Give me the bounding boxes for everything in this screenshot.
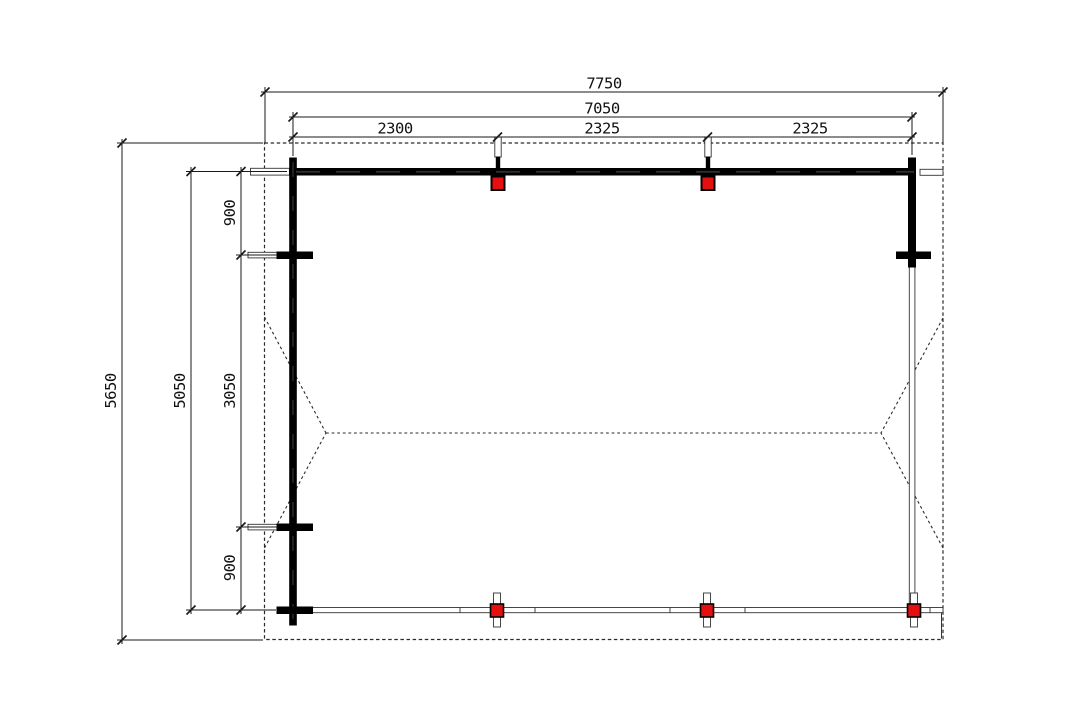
dim-label-inner-width: 7050: [584, 100, 619, 118]
log-end-top-right: [920, 169, 943, 175]
dim-label-overall-width: 7750: [586, 75, 621, 93]
dim-label-overall-depth: 5650: [102, 373, 120, 408]
post-anchor-outline: [495, 137, 501, 157]
dim-label-inner-depth: 5050: [171, 373, 189, 408]
dimension-labels-top: 7750 7050 2300 2325 2325: [377, 75, 827, 138]
carport-floor-plan-drawing: 7750 7050 2300 2325 2325 5650: [0, 0, 1080, 726]
open-walls: [297, 264, 944, 639]
cross-joint-bottom-left: [277, 607, 314, 615]
dimension-labels-left: 5650 5050 900 3050 900: [102, 200, 239, 582]
dim-label-depth-seg-3: 900: [221, 555, 239, 582]
dim-label-bay-3: 2325: [792, 120, 827, 138]
post-marker-bottom-3: [908, 604, 921, 617]
right-wall-beam: [909, 264, 915, 613]
floor-plan-page: 7750 7050 2300 2325 2325 5650: [0, 0, 1080, 726]
post-anchor-outline: [705, 137, 711, 157]
dim-label-depth-seg-1: 900: [221, 200, 239, 227]
roof-ridge-and-hips: [265, 317, 944, 548]
rafter-tie: [706, 157, 710, 169]
post-marker-bottom-2: [701, 604, 714, 617]
dim-label-bay-2: 2325: [584, 120, 619, 138]
solid-walls: [248, 158, 943, 626]
bottom-wall-beam: [297, 608, 944, 613]
cross-joint-left-lower: [277, 524, 314, 532]
roof-overhang-outline: [265, 143, 944, 640]
post-marker-bottom-1: [491, 604, 504, 617]
post-marker-top-2: [702, 177, 715, 191]
dimensions-left: [117, 139, 287, 645]
dim-label-bay-1: 2300: [377, 120, 412, 138]
cross-joint-left-upper: [277, 252, 314, 260]
rafter-tie: [496, 157, 500, 169]
cross-joint-top-right: [896, 252, 931, 260]
post-marker-top-1: [492, 177, 505, 191]
dim-label-depth-seg-2: 3050: [221, 373, 239, 408]
posts: [491, 137, 921, 627]
right-wall-corner-beam: [908, 158, 916, 268]
left-wall-beam: [289, 158, 297, 626]
roof-outline-rect: [265, 143, 944, 640]
